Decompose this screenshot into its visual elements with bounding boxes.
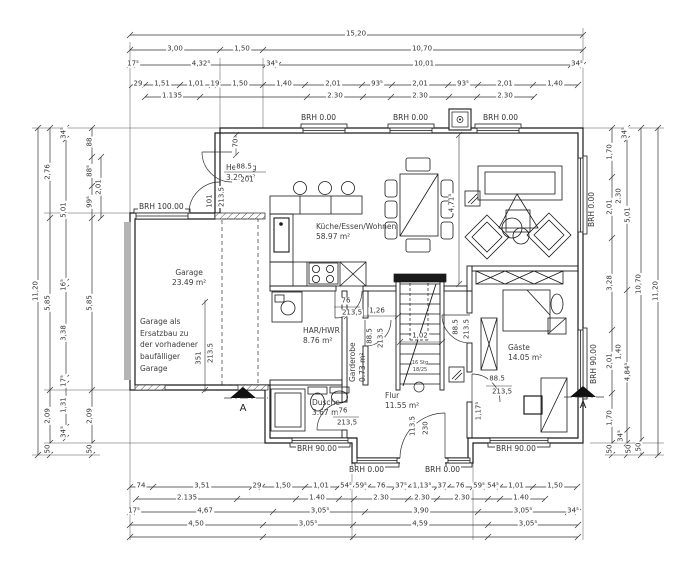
dim-label: 2.135 — [176, 495, 198, 502]
garage-note: Garage als Ersatzbau zu der vorhadener b… — [140, 316, 198, 374]
dim-label: 3,05⁵ — [513, 508, 533, 515]
dim-label: 34⁵ — [566, 508, 580, 515]
dim-label: 76 — [376, 483, 387, 490]
dim-label: 1,02 — [411, 333, 429, 340]
dim-label: 1,50 — [546, 483, 564, 490]
dim-label: 4,67 — [196, 508, 214, 515]
dim-label: 5,01 — [61, 201, 68, 219]
stairs-riser-label: 18/25 — [413, 367, 427, 373]
dim-label: 213.5 — [378, 327, 385, 349]
dim-label: 16⁵ — [61, 278, 68, 292]
brh-label-bottom-left: BRH 90.00 — [296, 445, 338, 453]
dim-label: 88⁵ — [87, 164, 94, 178]
dim-label: 1,01 — [312, 483, 330, 490]
dim-label: 4,59 — [411, 521, 429, 528]
dim-label: 2,09 — [87, 407, 94, 425]
dim-label: 37 — [437, 483, 448, 490]
stairs-count-label: 16 Stg — [412, 360, 428, 366]
dim-label: 10,70 — [636, 273, 643, 295]
dim-label: 5,85 — [87, 294, 94, 312]
floor-plan-page: BRH 0.00 BRH 0.00 BRH 0.00 BRH 100.00 BR… — [0, 0, 700, 569]
dim-label: 2.30 — [496, 93, 514, 100]
dim-label: 50 — [636, 442, 643, 453]
dim-label: 3,05⁵ — [310, 508, 330, 515]
outer-walls — [130, 128, 583, 463]
dim-label: 50 — [45, 444, 52, 455]
dim-label: 93⁵ — [456, 81, 470, 88]
dim-label: 1,40 — [616, 343, 623, 361]
room-label-flur: Flur 11.55 m² — [385, 391, 419, 411]
dim-label: 11,20 — [653, 280, 660, 302]
dim-label: 1,50 — [231, 81, 249, 88]
garage-dashed-outline — [222, 219, 258, 385]
dim-label: 54⁵ — [486, 483, 500, 490]
dim-label: 88.5 — [367, 327, 374, 345]
dim-label: 2,01 — [96, 178, 103, 196]
section-a-right-label: A — [580, 400, 587, 411]
living-furniture — [465, 166, 571, 259]
dim-label: 19 — [210, 81, 221, 88]
room-label-garderobe: Garderobe 0.73 m² — [348, 342, 368, 382]
dim-label: 3,05⁵ — [298, 521, 318, 528]
room-label-garage: Garage 23.49 m² — [172, 268, 206, 288]
dim-label: 3,05⁵ — [518, 521, 538, 528]
brh-label-bottom-mid1: BRH 0.00 — [348, 466, 385, 474]
dim-label: 101 — [207, 193, 214, 208]
brh-label-right-guest: BRH 90.00 — [590, 343, 598, 385]
dim-label: 34⁵ — [618, 429, 625, 443]
dim-label: 213,5 — [341, 310, 363, 317]
dim-label: 2.30 — [413, 495, 431, 502]
brh-label-top-3: BRH 0.00 — [482, 114, 519, 122]
dim-label: 34⁵ — [61, 425, 68, 439]
dim-label: 29 — [252, 483, 263, 490]
dim-label: 3,28 — [607, 274, 614, 292]
dim-label: 2,01 — [411, 81, 429, 88]
dim-label: 1,40 — [546, 81, 564, 88]
dim-label: 59⁵ — [472, 483, 486, 490]
dim-label: 1,13⁵ — [412, 483, 432, 490]
dim-label: 4,71⁵ — [449, 193, 456, 213]
dim-label: 2,01 — [496, 81, 514, 88]
dim-label: 10,01 — [413, 61, 435, 68]
dim-label: 1,31 — [61, 396, 68, 414]
dim-label: 1,40 — [275, 81, 293, 88]
dim-label: 29 — [133, 81, 144, 88]
windows — [134, 124, 587, 467]
dim-label: 213.5 — [208, 342, 215, 364]
brh-label-top-1: BRH 0.00 — [300, 114, 337, 122]
dim-label: 17⁵ — [61, 374, 68, 388]
dim-label: 1.135 — [161, 93, 183, 100]
dim-label: 1,50 — [274, 483, 292, 490]
dim-label: 230 — [423, 420, 430, 435]
dim-label: 54⁵ — [339, 483, 353, 490]
dim-label: 2,01 — [607, 352, 614, 370]
brh-label-garage: BRH 100.00 — [138, 203, 185, 211]
dim-label: 1,01 — [187, 81, 205, 88]
dim-label: 1,26 — [368, 308, 386, 315]
dim-label: 4,84⁵ — [625, 362, 632, 382]
dim-label: 50 — [87, 444, 94, 455]
dim-label: 201 — [239, 177, 254, 184]
dim-label: 4,50 — [187, 521, 205, 528]
dim-label: 37⁵ — [394, 483, 408, 490]
dim-label: 2.30 — [372, 495, 390, 502]
dim-label: 3,51 — [193, 483, 211, 490]
dim-label: 17⁵ — [126, 61, 140, 68]
dim-label: 10,70 — [411, 46, 433, 53]
dim-label: 34⁵ — [61, 126, 68, 140]
dim-label: 34⁵ — [265, 61, 279, 68]
dim-label: 34⁵ — [570, 61, 584, 68]
dim-label: 93⁵ — [370, 81, 384, 88]
dim-label: 76 — [341, 298, 352, 305]
dim-label: 50 — [626, 444, 633, 455]
dim-label: 76 — [338, 408, 349, 415]
dim-label: 3,00 — [166, 46, 184, 53]
dim-label: 15,20 — [345, 31, 367, 38]
dim-label: 50 — [607, 444, 614, 455]
dim-label: 34⁵ — [622, 126, 629, 140]
dim-label: 1.40 — [308, 495, 326, 502]
dim-label: 2.30 — [411, 93, 429, 100]
dim-label: 2,09 — [45, 407, 52, 425]
room-label-har: HAR/HWR 8.76 m² — [303, 326, 340, 346]
dim-label: 11,20 — [33, 280, 40, 302]
dim-label: 2,76 — [45, 163, 52, 181]
chimney — [449, 109, 471, 130]
garage-door — [124, 222, 131, 380]
dim-label: 99⁵ — [87, 195, 94, 209]
dim-label: 2.30 — [616, 187, 623, 205]
brh-label-right-living: BRH 0.00 — [588, 191, 596, 228]
dim-label: 351 — [196, 350, 203, 365]
dim-label: 2,01 — [607, 198, 614, 216]
dim-label: 88.5 — [235, 164, 253, 171]
dim-label: 5,85 — [45, 294, 52, 312]
dim-label: 5,01 — [625, 206, 632, 224]
brh-label-bottom-right: BRH 90.00 — [495, 445, 537, 453]
dim-label: 76 — [455, 483, 466, 490]
dim-label: 213.5 — [219, 186, 226, 208]
dim-label: 1,51 — [153, 81, 171, 88]
dim-label: 88 — [87, 137, 94, 148]
dim-label: 17⁵ — [127, 508, 141, 515]
brh-label-bottom-mid2: BRH 0.00 — [424, 466, 461, 474]
dim-label: 213.5 — [464, 318, 471, 340]
dim-label: 59⁵ — [354, 483, 368, 490]
dim-label: 1.40 — [512, 495, 530, 502]
room-label-gaeste: Gäste 14.05 m² — [508, 343, 542, 363]
section-a-left-label: A — [240, 403, 247, 414]
dim-label: 113.5 — [410, 415, 417, 437]
room-label-kueche: Küche/Essen/Wohnen 58.97 m² — [316, 222, 396, 242]
dim-label: 88.5 — [488, 376, 506, 383]
dim-label: 1,50 — [233, 46, 251, 53]
dim-label: 1,17⁵ — [476, 401, 483, 421]
brh-label-top-2: BRH 0.00 — [392, 114, 429, 122]
dim-label: 2,01 — [324, 81, 342, 88]
dim-label: 4,32⁵ — [191, 61, 211, 68]
dim-label: 74 — [136, 483, 147, 490]
dim-label: 88.5 — [453, 318, 460, 336]
dim-label: 3,90 — [412, 508, 430, 515]
dim-label: 3,38 — [61, 324, 68, 342]
dim-label: 1,70 — [607, 409, 614, 427]
dim-label: 213,5 — [491, 389, 513, 396]
dim-label: 2.30 — [453, 495, 471, 502]
dim-label: 1,70 — [607, 143, 614, 161]
dim-label: 2.30 — [326, 93, 344, 100]
dim-label: 213,5 — [336, 420, 358, 427]
dim-label: 70 — [233, 138, 240, 149]
dim-label: 1,01 — [507, 483, 525, 490]
